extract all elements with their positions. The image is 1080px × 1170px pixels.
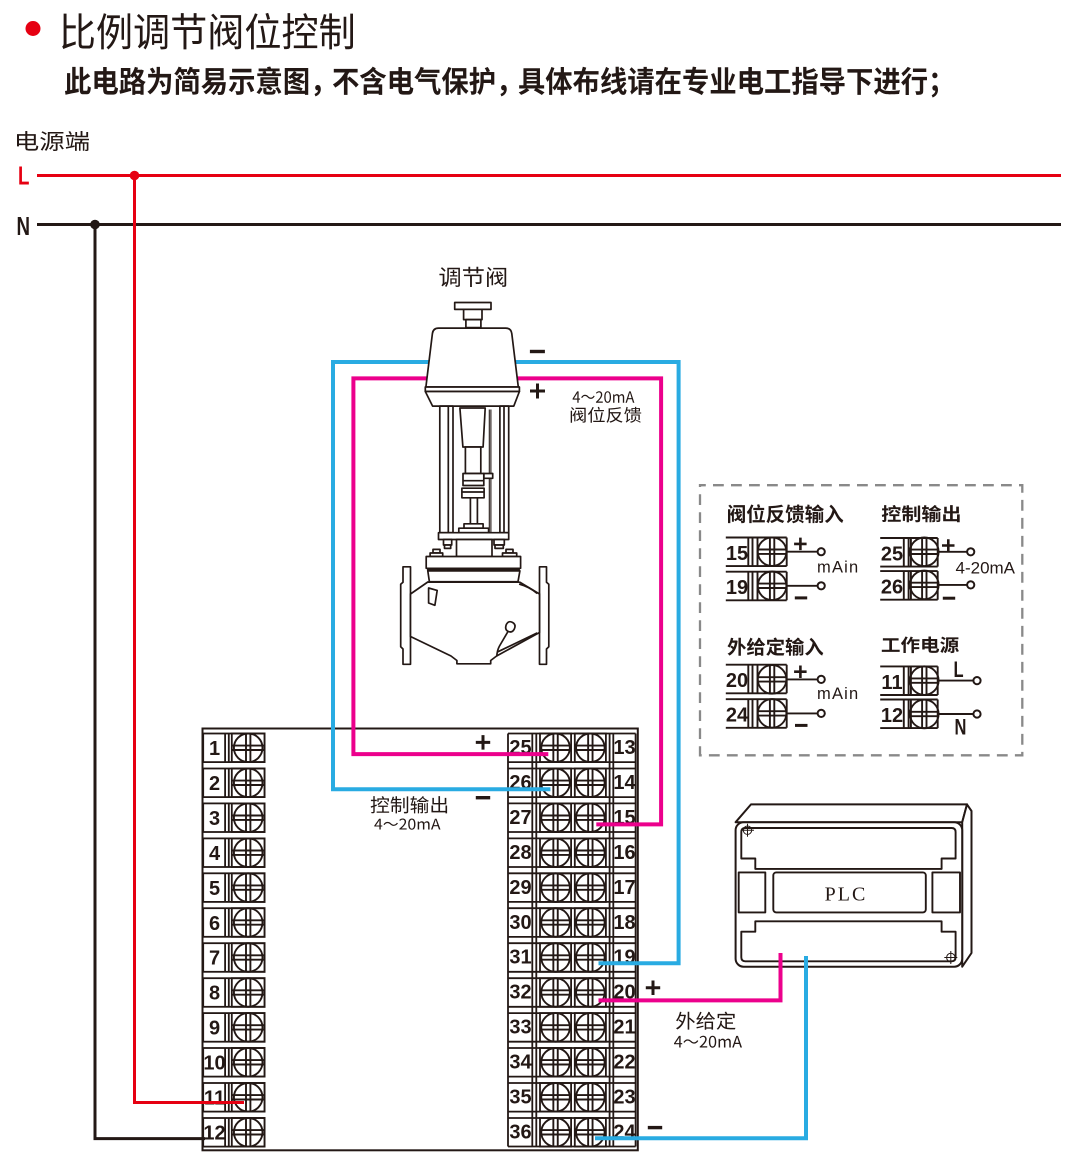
svg-text:16: 16 [613,842,635,864]
svg-text:32: 32 [509,982,531,1004]
svg-text:12: 12 [203,1123,225,1145]
svg-text:14: 14 [613,772,636,794]
svg-text:4: 4 [209,843,221,865]
svg-text:20: 20 [726,670,748,692]
svg-text:31: 31 [509,947,531,969]
svg-text:N: N [17,211,31,241]
svg-text:15: 15 [726,543,748,565]
svg-text:6: 6 [209,913,220,935]
svg-text:8: 8 [209,983,220,1005]
svg-text:10: 10 [203,1053,225,1075]
svg-text:2: 2 [209,773,220,795]
svg-text:9: 9 [209,1018,220,1040]
svg-text:4-20mA: 4-20mA [956,558,1016,577]
svg-text:5: 5 [209,878,220,900]
svg-text:25: 25 [881,543,903,565]
svg-text:22: 22 [613,1052,635,1074]
svg-text:34: 34 [509,1052,532,1074]
svg-text:29: 29 [509,877,531,899]
svg-text:28: 28 [509,842,531,864]
svg-text:19: 19 [613,947,635,969]
svg-text:N: N [955,715,967,740]
svg-text:21: 21 [613,1017,635,1039]
svg-text:12: 12 [881,705,903,727]
svg-text:13: 13 [613,737,635,759]
svg-text:33: 33 [509,1017,531,1039]
svg-text:1: 1 [209,738,220,760]
svg-text:26: 26 [881,577,903,599]
svg-text:35: 35 [509,1087,531,1109]
svg-text:27: 27 [509,807,531,829]
svg-text:mAin: mAin [817,685,859,703]
svg-text:PLC: PLC [825,884,868,906]
svg-text:24: 24 [726,705,749,727]
svg-text:11: 11 [881,672,902,694]
svg-text:17: 17 [613,877,635,899]
svg-text:3: 3 [209,808,220,830]
svg-text:19: 19 [726,577,748,599]
svg-text:L: L [18,160,30,190]
svg-text:L: L [954,658,964,683]
svg-text:18: 18 [613,912,635,934]
svg-text:7: 7 [209,948,220,970]
svg-text:36: 36 [509,1122,531,1144]
svg-text:11: 11 [204,1088,225,1110]
svg-text:30: 30 [509,912,531,934]
svg-text:mAin: mAin [817,559,859,577]
svg-text:23: 23 [613,1087,635,1109]
